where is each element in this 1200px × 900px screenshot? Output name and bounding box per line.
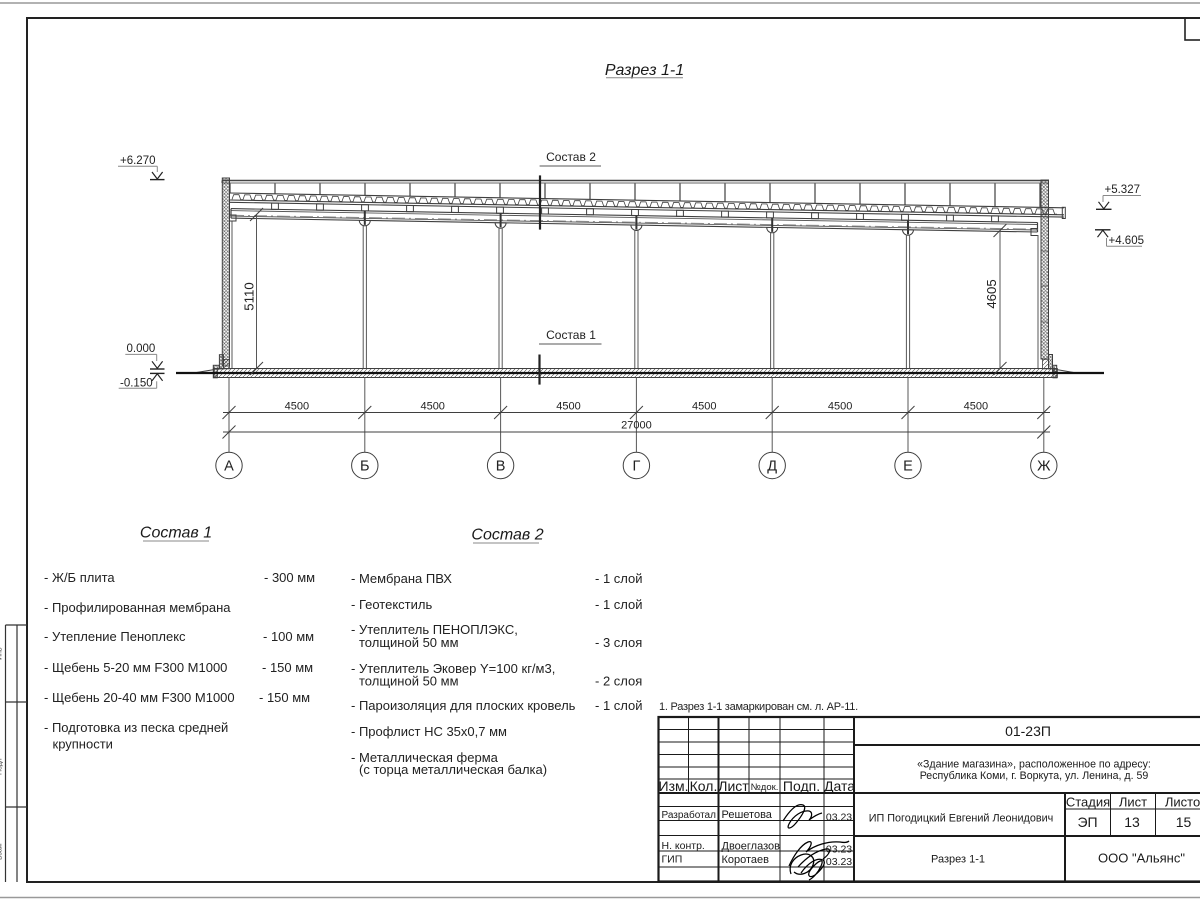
svg-text:Решетова: Решетова: [722, 809, 773, 821]
svg-text:толщиной 50 мм: толщиной 50 мм: [359, 674, 459, 689]
svg-text:- 300 мм: - 300 мм: [264, 570, 315, 585]
svg-text:№док.: №док.: [751, 782, 779, 793]
svg-text:5110: 5110: [242, 282, 257, 310]
svg-text:- 1 слой: - 1 слой: [595, 698, 643, 713]
svg-text:4500: 4500: [285, 401, 309, 413]
svg-text:ЭП: ЭП: [1077, 814, 1097, 830]
svg-text:Подп: Подп: [0, 758, 4, 775]
svg-text:27000: 27000: [621, 420, 652, 432]
svg-text:«Здание магазина», расположенн: «Здание магазина», расположенное по адре…: [917, 759, 1151, 771]
svg-text:- Утепление Пеноплекс: - Утепление Пеноплекс: [44, 629, 186, 644]
svg-text:- 100 мм: - 100 мм: [263, 629, 314, 644]
svg-text:-0.150: -0.150: [120, 378, 153, 390]
svg-text:+4.605: +4.605: [1109, 235, 1145, 247]
svg-text:+6.270: +6.270: [120, 155, 156, 167]
svg-text:- 150 мм: - 150 мм: [259, 690, 310, 705]
svg-text:1. Разрез 1-1 замаркирован см.: 1. Разрез 1-1 замаркирован см. л. АР-11.: [659, 701, 858, 713]
svg-text:(с торца металлическая балка): (с торца металлическая балка): [359, 762, 547, 777]
svg-text:13: 13: [1124, 814, 1140, 830]
svg-text:Состав 1: Состав 1: [140, 525, 212, 542]
svg-text:толщиной 50 мм: толщиной 50 мм: [359, 635, 459, 650]
svg-text:Двоеглазов: Двоеглазов: [722, 841, 781, 853]
svg-text:0.000: 0.000: [127, 343, 156, 355]
svg-text:Коротаев: Коротаев: [722, 854, 770, 866]
svg-text:4500: 4500: [420, 401, 444, 413]
svg-text:крупности: крупности: [53, 737, 113, 752]
svg-text:Инв: Инв: [0, 647, 4, 660]
svg-text:Стадия: Стадия: [1066, 795, 1110, 810]
svg-text:Изм.: Изм.: [659, 778, 689, 794]
svg-text:- 2 слоя: - 2 слоя: [595, 674, 642, 689]
svg-text:ГИП: ГИП: [662, 854, 683, 866]
svg-text:Состав 2: Состав 2: [546, 150, 596, 164]
svg-text:Взам: Взам: [0, 843, 4, 860]
svg-text:- Щебень 5-20 мм F300 М1000: - Щебень 5-20 мм F300 М1000: [44, 660, 227, 675]
svg-text:03.23: 03.23: [826, 856, 852, 868]
svg-text:- Щебень 20-40 мм F300 М1000: - Щебень 20-40 мм F300 М1000: [44, 690, 235, 705]
svg-text:ИП Погодицкий Евгений Леонидов: ИП Погодицкий Евгений Леонидович: [869, 813, 1054, 825]
svg-text:15: 15: [1176, 814, 1192, 830]
svg-text:Д: Д: [767, 459, 777, 475]
svg-text:Состав 1: Состав 1: [546, 328, 596, 342]
svg-text:Н. контр.: Н. контр.: [662, 840, 705, 852]
svg-text:Подп.: Подп.: [783, 778, 820, 794]
svg-text:- Пароизоляция для плоских кро: - Пароизоляция для плоских кровель: [351, 698, 576, 713]
svg-text:Листов: Листов: [1165, 795, 1200, 810]
svg-text:- 150 мм: - 150 мм: [262, 660, 313, 675]
svg-text:Лист: Лист: [718, 778, 749, 794]
svg-text:- Подготовка из песка средней: - Подготовка из песка средней: [44, 720, 228, 735]
svg-text:Ж: Ж: [1037, 459, 1051, 475]
svg-text:- 1 слой: - 1 слой: [595, 597, 643, 612]
svg-text:Кол.: Кол.: [690, 778, 718, 794]
svg-text:Лист: Лист: [1119, 795, 1147, 810]
svg-text:- Профилированная мембрана: - Профилированная мембрана: [44, 600, 231, 615]
svg-text:- Ж/Б плита: - Ж/Б плита: [44, 570, 115, 585]
svg-text:- Геотекстиль: - Геотекстиль: [351, 597, 432, 612]
svg-text:Состав 2: Состав 2: [471, 527, 543, 544]
svg-text:ООО "Альянс": ООО "Альянс": [1098, 851, 1185, 866]
svg-text:4500: 4500: [828, 401, 852, 413]
svg-text:- Мембрана ПВХ: - Мембрана ПВХ: [351, 571, 452, 586]
svg-text:Разработал: Разработал: [662, 809, 717, 821]
svg-text:- 1 слой: - 1 слой: [595, 571, 643, 586]
svg-text:4500: 4500: [692, 401, 716, 413]
svg-text:Разрез 1-1: Разрез 1-1: [605, 62, 684, 79]
svg-text:- Профлист НС 35х0,7 мм: - Профлист НС 35х0,7 мм: [351, 724, 507, 739]
svg-text:Е: Е: [903, 459, 913, 475]
svg-text:Разрез 1-1: Разрез 1-1: [931, 854, 985, 866]
svg-text:Г: Г: [632, 459, 640, 475]
svg-text:В: В: [496, 459, 506, 475]
svg-text:01-23П: 01-23П: [1005, 723, 1051, 739]
svg-text:Дата: Дата: [824, 778, 855, 794]
svg-text:- 3 слоя: - 3 слоя: [595, 635, 642, 650]
svg-text:4500: 4500: [556, 401, 580, 413]
svg-text:4605: 4605: [984, 279, 999, 308]
svg-text:+5.327: +5.327: [1105, 184, 1141, 196]
svg-text:Б: Б: [360, 459, 370, 475]
svg-text:4500: 4500: [964, 401, 988, 413]
svg-text:А: А: [224, 459, 234, 475]
svg-text:03.23: 03.23: [826, 812, 852, 824]
svg-text:Республика Коми, г. Воркута, у: Республика Коми, г. Воркута, ул. Ленина,…: [920, 770, 1149, 782]
